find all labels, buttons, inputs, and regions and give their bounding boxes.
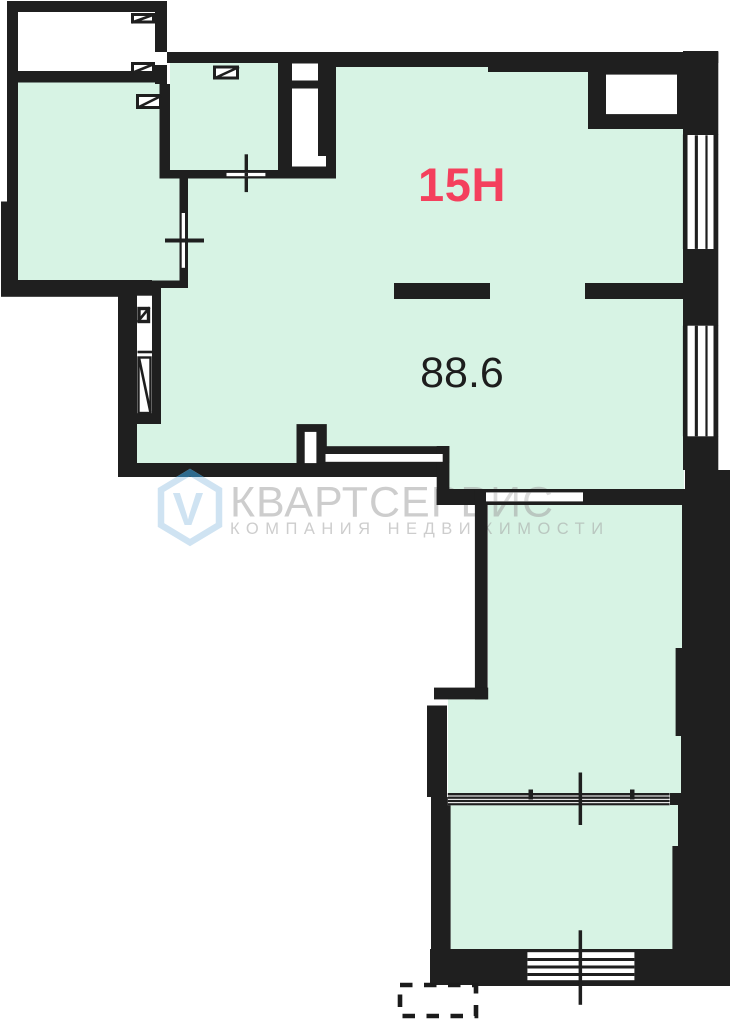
svg-text:КОМПАНИЯ НЕДВИЖИМОСТИ: КОМПАНИЯ НЕДВИЖИМОСТИ: [230, 520, 610, 538]
svg-text:V: V: [173, 483, 204, 535]
svg-text:15Н: 15Н: [418, 158, 506, 211]
svg-text:88.6: 88.6: [420, 349, 504, 397]
